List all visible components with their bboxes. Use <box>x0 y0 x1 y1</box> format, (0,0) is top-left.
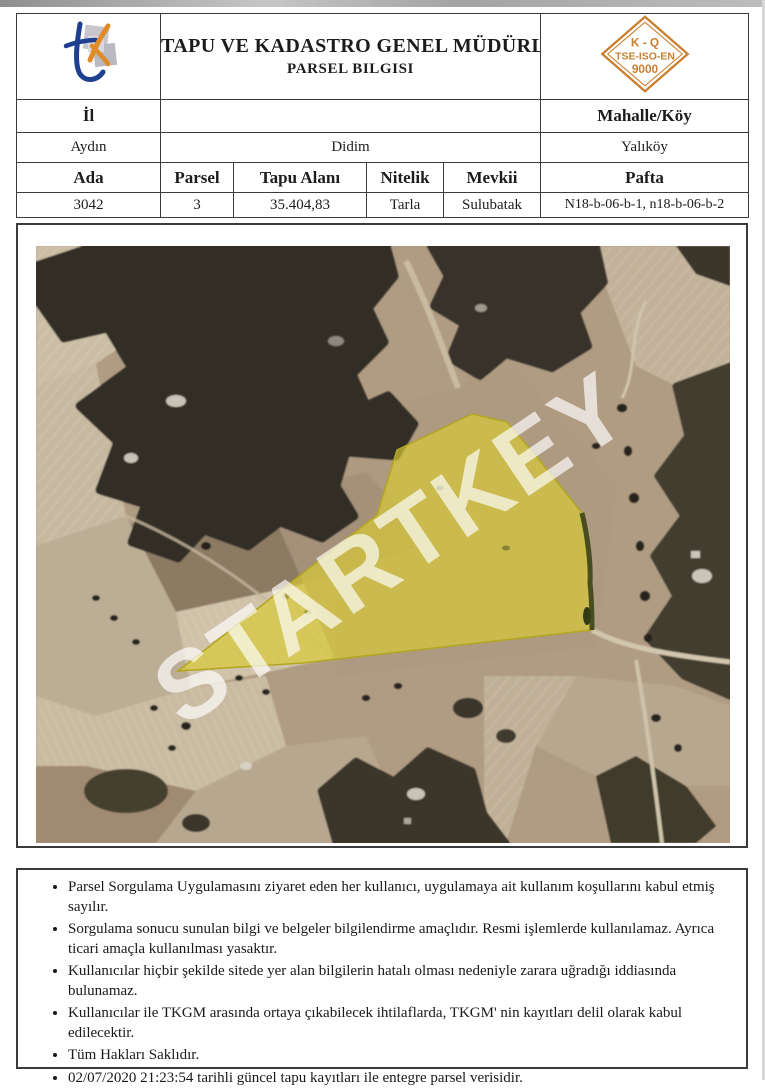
tse-iso-badge-icon: K - Q TSE-ISO-EN 9000 <box>599 14 691 94</box>
document-title: TAPU VE KADASTRO GENEL MÜDÜRLÜĞÜ <box>161 35 540 58</box>
ilce-value-cell: Didim <box>161 133 541 163</box>
disclaimer-box: Parsel Sorgulama Uygulamasını ziyaret ed… <box>16 868 748 1069</box>
pafta-value-cell: N18-b-06-b-1, n18-b-06-b-2 <box>541 193 749 218</box>
mevkii-value-cell: Sulubatak <box>444 193 541 218</box>
parsel-value-cell: 3 <box>161 193 234 218</box>
mahalle-koy-header-cell: Mahalle/Köy <box>541 100 749 133</box>
satellite-map: STARTKEY <box>36 246 730 843</box>
disclaimer-item: Sorgulama sonucu sunulan bilgi ve belgel… <box>68 920 734 959</box>
nitelik-header-cell: Nitelik <box>367 163 444 193</box>
disclaimer-date-item: 02/07/2020 21:23:54 tarihli güncel tapu … <box>68 1069 734 1088</box>
document-subtitle: PARSEL BILGISI <box>161 61 540 78</box>
empty-header-cell <box>161 100 541 133</box>
quality-badge-cell: K - Q TSE-ISO-EN 9000 <box>541 14 749 100</box>
header-title-cell: TAPU VE KADASTRO GENEL MÜDÜRLÜĞÜ PARSEL … <box>161 14 541 100</box>
header-table: TAPU VE KADASTRO GENEL MÜDÜRLÜĞÜ PARSEL … <box>16 13 749 218</box>
badge-line2: TSE-ISO-EN <box>615 51 675 62</box>
disclaimer-list: Parsel Sorgulama Uygulamasını ziyaret ed… <box>18 870 746 1088</box>
parcel-map-box: STARTKEY <box>16 223 748 848</box>
parcel-report-page: { "header": { "title_line1": "TAPU VE KA… <box>0 0 765 1080</box>
badge-line3: 9000 <box>631 62 658 76</box>
il-header-cell: İl <box>17 100 161 133</box>
tapu-alani-value-cell: 35.404,83 <box>234 193 367 218</box>
tkgm-logo-icon <box>50 18 128 90</box>
disclaimer-item: Kullanıcılar ile TKGM arasında ortaya çı… <box>68 1004 734 1043</box>
parsel-header-cell: Parsel <box>161 163 234 193</box>
tapu-alani-header-cell: Tapu Alanı <box>234 163 367 193</box>
satellite-image: STARTKEY <box>36 246 730 843</box>
nitelik-value-cell: Tarla <box>367 193 444 218</box>
il-value-cell: Aydın <box>17 133 161 163</box>
disclaimer-item: Tüm Hakları Saklıdır. <box>68 1046 734 1066</box>
disclaimer-item: Kullanıcılar hiçbir şekilde sitede yer a… <box>68 962 734 1001</box>
pafta-header-cell: Pafta <box>541 163 749 193</box>
mevkii-header-cell: Mevkii <box>444 163 541 193</box>
mahalle-koy-value-cell: Yalıköy <box>541 133 749 163</box>
tkgm-logo-cell <box>17 14 161 100</box>
ada-header-cell: Ada <box>17 163 161 193</box>
scan-artifact-strip <box>0 0 765 7</box>
disclaimer-item: Parsel Sorgulama Uygulamasını ziyaret ed… <box>68 878 734 917</box>
badge-line1: K - Q <box>630 36 658 50</box>
ada-value-cell: 3042 <box>17 193 161 218</box>
